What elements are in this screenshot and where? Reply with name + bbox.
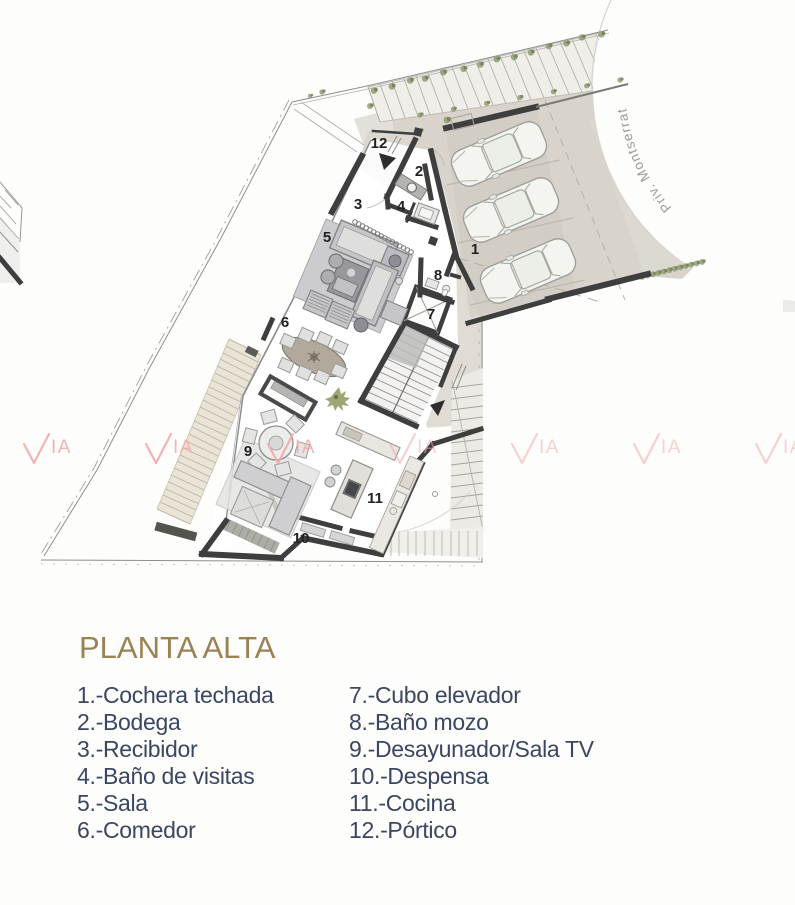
svg-text:2.-Bodega: 2.-Bodega bbox=[77, 709, 181, 735]
svg-text:3: 3 bbox=[354, 196, 362, 213]
svg-text:IA: IA bbox=[783, 437, 795, 458]
svg-text:10: 10 bbox=[293, 530, 310, 547]
svg-text:2: 2 bbox=[415, 163, 423, 180]
svg-text:12: 12 bbox=[371, 135, 388, 152]
svg-text:4: 4 bbox=[397, 198, 406, 215]
svg-text:1.-Cochera techada: 1.-Cochera techada bbox=[77, 682, 274, 708]
svg-text:12.-Pórtico: 12.-Pórtico bbox=[349, 817, 457, 843]
svg-text:11: 11 bbox=[367, 490, 383, 507]
svg-text:IA: IA bbox=[417, 437, 438, 458]
svg-text:IA: IA bbox=[661, 437, 682, 458]
svg-text:10.-Despensa: 10.-Despensa bbox=[349, 763, 489, 789]
svg-text:7: 7 bbox=[427, 306, 435, 323]
svg-text:PLANTA ALTA: PLANTA ALTA bbox=[79, 630, 276, 665]
svg-text:IA: IA bbox=[51, 437, 72, 458]
svg-text:5: 5 bbox=[323, 229, 331, 246]
svg-text:1: 1 bbox=[471, 241, 479, 258]
svg-text:6.-Comedor: 6.-Comedor bbox=[77, 817, 196, 843]
svg-text:IA: IA bbox=[295, 437, 316, 458]
svg-text:9: 9 bbox=[244, 443, 252, 460]
svg-text:3.-Recibidor: 3.-Recibidor bbox=[77, 736, 198, 762]
svg-text:8: 8 bbox=[434, 267, 442, 284]
svg-text:9.-Desayunador/Sala TV: 9.-Desayunador/Sala TV bbox=[349, 736, 595, 762]
svg-text:7.-Cubo elevador: 7.-Cubo elevador bbox=[349, 682, 521, 708]
svg-text:8.-Baño mozo: 8.-Baño mozo bbox=[349, 709, 489, 735]
svg-text:11.-Cocina: 11.-Cocina bbox=[349, 790, 456, 816]
svg-text:IA: IA bbox=[539, 437, 560, 458]
svg-text:6: 6 bbox=[281, 314, 289, 331]
svg-text:IA: IA bbox=[173, 437, 194, 458]
svg-text:4.-Baño de visitas: 4.-Baño de visitas bbox=[77, 763, 254, 789]
svg-text:5.-Sala: 5.-Sala bbox=[77, 790, 148, 816]
